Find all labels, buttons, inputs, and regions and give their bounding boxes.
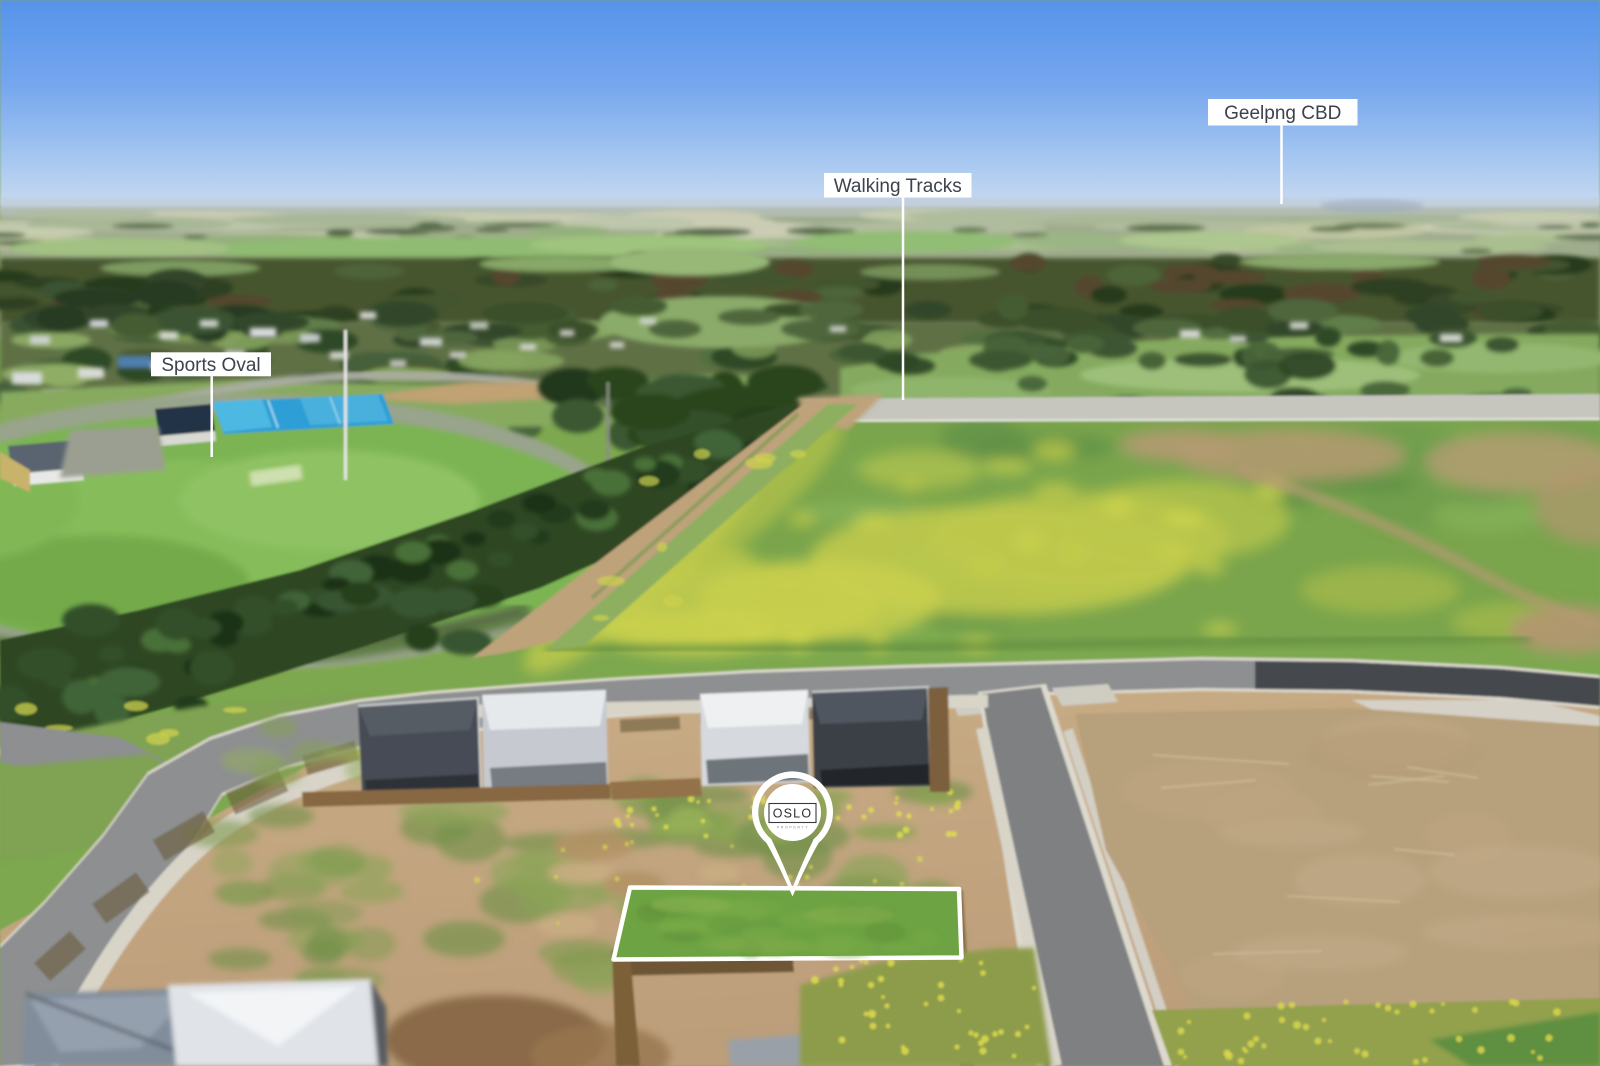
svg-text:Walking Tracks: Walking Tracks <box>834 176 962 197</box>
svg-text:OSLO: OSLO <box>773 807 813 821</box>
svg-text:Geelpng CBD: Geelpng CBD <box>1224 103 1341 124</box>
svg-text:Sports Oval: Sports Oval <box>161 355 260 376</box>
svg-text:PROPERTY: PROPERTY <box>777 826 810 830</box>
